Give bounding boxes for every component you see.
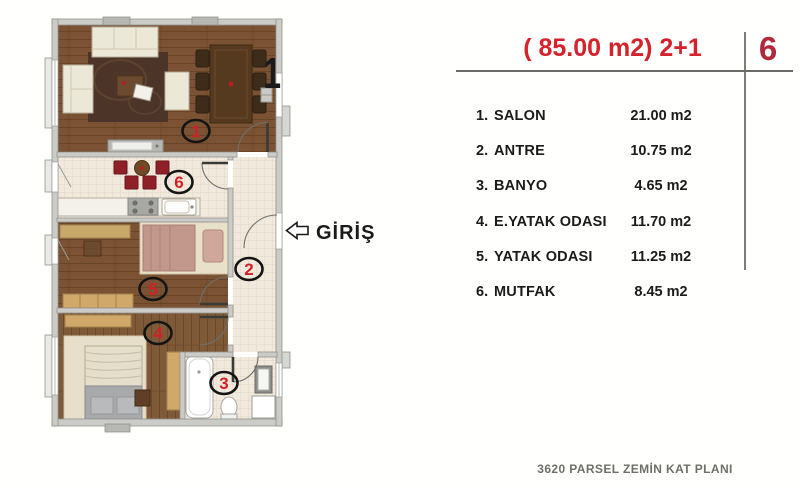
plan-footer-caption: 3620 PARSEL ZEMİN KAT PLANI	[460, 462, 800, 476]
svg-text:3: 3	[219, 374, 228, 393]
screenshot-root: 1 1 2 3 4 5	[0, 0, 800, 488]
row-number: 4.	[476, 214, 494, 230]
room-area: 11.70 m2	[608, 214, 714, 230]
legend-rows: 1. SALON 21.00 m2 2. ANTRE 10.75 m2 3. B…	[476, 98, 714, 310]
svg-text:1: 1	[191, 122, 200, 141]
row-number: 5.	[476, 249, 494, 265]
antre-floor	[233, 157, 277, 352]
chair	[84, 241, 101, 256]
row-number: 3.	[476, 178, 494, 194]
bedroom-window	[52, 238, 58, 264]
pillow	[203, 230, 223, 262]
room-area: 4.65 m2	[608, 178, 714, 194]
floor-plan-drawing: 1 1 2 3 4 5	[0, 0, 400, 488]
legend-row-yatak: 5. YATAK ODASI 11.25 m2	[476, 239, 714, 274]
entrance-arrow-icon	[287, 223, 309, 239]
room-area: 10.75 m2	[608, 143, 714, 159]
legend-row-salon: 1. SALON 21.00 m2	[476, 98, 714, 133]
wardrobe-side	[167, 352, 180, 410]
nightstand	[135, 390, 150, 406]
entrance-opening	[276, 213, 282, 249]
wardrobe-top	[65, 315, 131, 327]
legend-row-eyatak: 4. E.YATAK ODASI 11.70 m2	[476, 204, 714, 239]
svg-text:4: 4	[153, 324, 163, 343]
bathroom-cabinet	[252, 396, 275, 418]
corner-digit: 1	[263, 49, 281, 98]
legend-row-antre: 2. ANTRE 10.75 m2	[476, 133, 714, 168]
stove	[128, 198, 158, 215]
svg-text:1: 1	[263, 49, 281, 98]
row-number: 2.	[476, 143, 494, 159]
room-area: 8.45 m2	[608, 284, 714, 300]
room-name: YATAK ODASI	[494, 249, 608, 265]
room-area: 21.00 m2	[608, 108, 714, 124]
room-name: E.YATAK ODASI	[494, 214, 608, 230]
room-name: MUTFAK	[494, 284, 608, 300]
legend-title: ( 85.00 m2) 2+1	[455, 34, 770, 63]
room-area: 11.25 m2	[608, 249, 714, 265]
svg-text:5: 5	[148, 280, 157, 299]
vertical-divider	[744, 32, 746, 270]
room-name: SALON	[494, 108, 608, 124]
legend-row-banyo: 3. BANYO 4.65 m2	[476, 169, 714, 204]
title-underline	[456, 70, 793, 72]
room-name: BANYO	[494, 178, 608, 194]
room-name: ANTRE	[494, 143, 608, 159]
entrance-label: GİRİŞ	[316, 221, 375, 244]
entrance: GİRİŞ	[287, 221, 376, 244]
kitchen-window	[52, 162, 58, 192]
armchair-right	[165, 72, 189, 110]
floor-plan: 1 1 2 3 4 5	[0, 0, 400, 488]
row-number: 1.	[476, 108, 494, 124]
bathtub	[186, 356, 213, 418]
dresser	[60, 225, 130, 238]
pillow-left	[91, 397, 113, 414]
unit-number: 6	[746, 30, 790, 68]
sofa	[92, 27, 158, 57]
legend-row-mutfak: 6. MUTFAK 8.45 m2	[476, 274, 714, 309]
svg-text:2: 2	[244, 260, 253, 279]
master-bed-duvet	[85, 346, 142, 386]
svg-text:6: 6	[174, 173, 183, 192]
row-number: 6.	[476, 284, 494, 300]
